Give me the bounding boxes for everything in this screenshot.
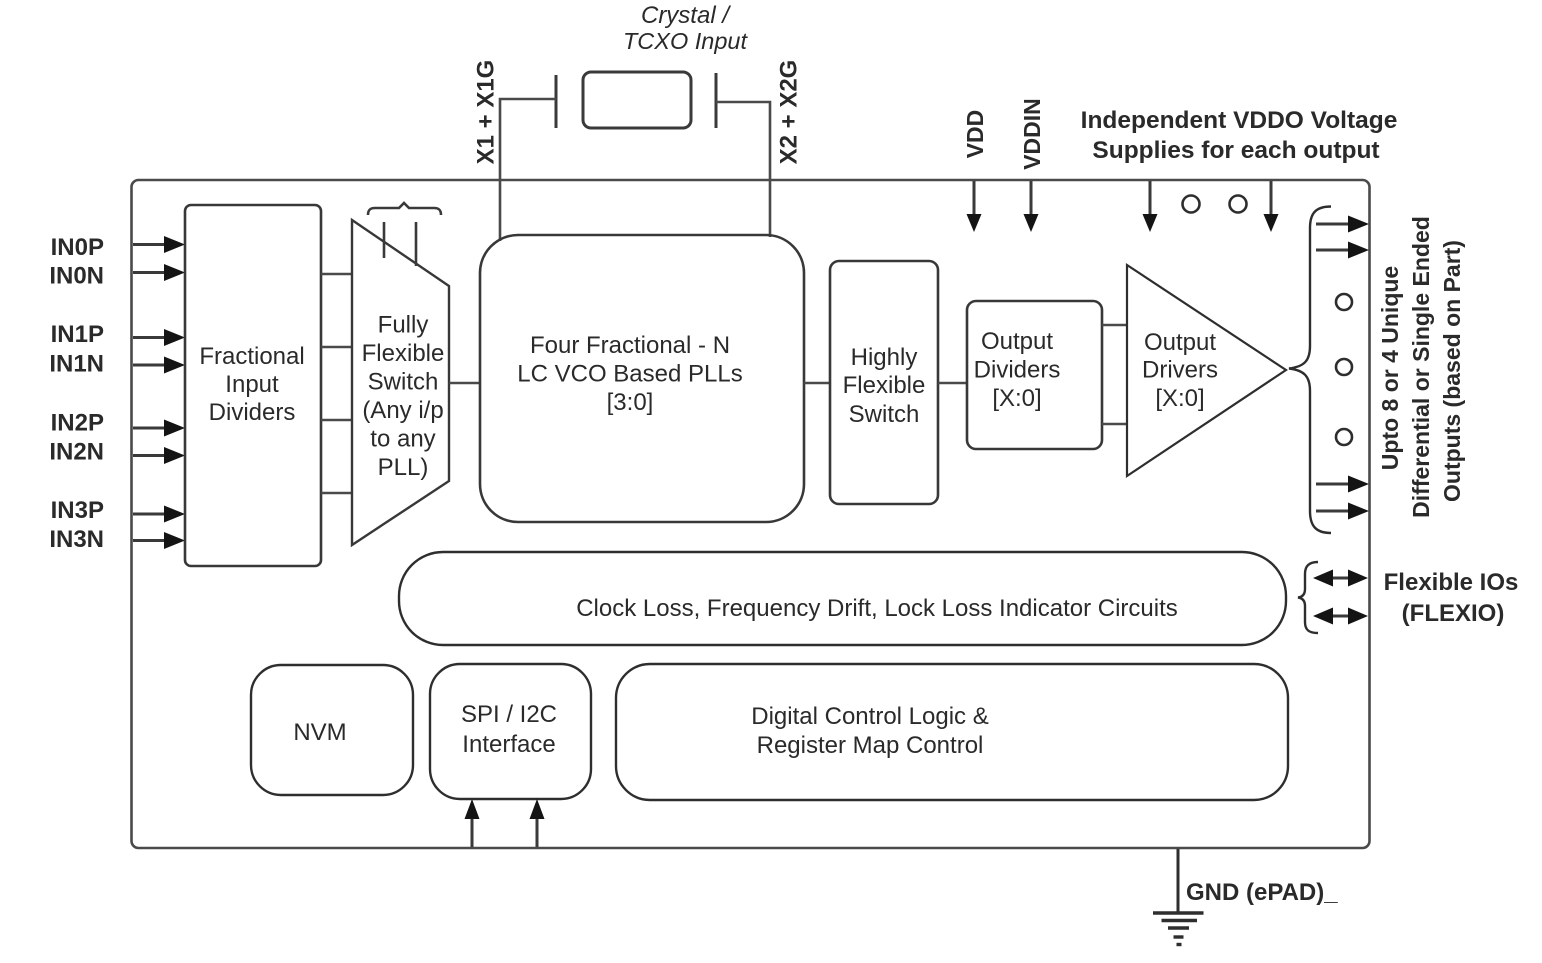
svg-text:Output: Output <box>1144 329 1216 356</box>
svg-text:TCXO Input: TCXO Input <box>623 28 749 54</box>
svg-text:Flexible IOs: Flexible IOs <box>1384 569 1519 596</box>
svg-text:LC VCO Based PLLs: LC VCO Based PLLs <box>517 361 742 388</box>
svg-text:[3:0]: [3:0] <box>607 389 654 416</box>
svg-text:IN2P: IN2P <box>51 410 104 437</box>
svg-text:(FLEXIO): (FLEXIO) <box>1402 600 1505 627</box>
svg-text:Upto 8 or 4 Unique: Upto 8 or 4 Unique <box>1377 266 1403 470</box>
svg-text:Fully: Fully <box>378 312 429 339</box>
svg-text:IN0N: IN0N <box>49 263 104 290</box>
svg-text:IN1P: IN1P <box>51 321 104 348</box>
svg-text:Supplies for each output: Supplies for each output <box>1092 137 1379 164</box>
svg-text:[X:0]: [X:0] <box>1155 385 1204 412</box>
svg-text:Drivers: Drivers <box>1142 357 1218 384</box>
svg-text:Interface: Interface <box>462 731 555 758</box>
svg-text:Output: Output <box>981 328 1053 355</box>
svg-text:Switch: Switch <box>849 401 920 428</box>
svg-text:IN1N: IN1N <box>49 351 104 378</box>
svg-text:Flexible: Flexible <box>843 372 926 399</box>
svg-text:Four Fractional - N: Four Fractional - N <box>530 332 730 359</box>
svg-text:PLL): PLL) <box>378 454 429 481</box>
svg-text:X2 + X2G: X2 + X2G <box>776 60 803 165</box>
svg-text:Clock Loss, Frequency Drift, L: Clock Loss, Frequency Drift, Lock Loss I… <box>576 595 1178 622</box>
svg-text:SPI / I2C: SPI / I2C <box>461 701 557 728</box>
svg-text:Switch: Switch <box>368 369 439 396</box>
svg-text:to any: to any <box>370 426 435 453</box>
svg-text:Flexible: Flexible <box>362 340 445 367</box>
svg-text:Outputs (based on Part): Outputs (based on Part) <box>1439 240 1465 502</box>
svg-text:Highly: Highly <box>851 344 918 371</box>
svg-text:IN0P: IN0P <box>51 234 104 261</box>
svg-text:Dividers: Dividers <box>974 357 1061 384</box>
svg-text:(Any i/p: (Any i/p <box>362 397 443 424</box>
svg-text:IN3P: IN3P <box>51 497 104 524</box>
svg-text:VDD: VDD <box>962 110 988 159</box>
svg-text:Crystal /: Crystal / <box>641 2 731 29</box>
svg-text:IN3N: IN3N <box>49 526 104 553</box>
svg-text:Digital Control Logic &: Digital Control Logic & <box>751 703 988 730</box>
svg-text:Dividers: Dividers <box>209 399 296 426</box>
svg-text:IN2N: IN2N <box>49 439 104 466</box>
svg-text:VDDIN: VDDIN <box>1019 98 1045 170</box>
svg-text:NVM: NVM <box>293 719 346 746</box>
svg-text:GND (ePAD)_: GND (ePAD)_ <box>1186 879 1338 906</box>
svg-text:Input: Input <box>225 371 279 398</box>
svg-text:Independent VDDO Voltage: Independent VDDO Voltage <box>1081 107 1398 134</box>
svg-text:Differential or Single Ended: Differential or Single Ended <box>1408 216 1434 518</box>
svg-text:Fractional: Fractional <box>199 343 304 370</box>
svg-text:[X:0]: [X:0] <box>992 385 1041 412</box>
svg-text:X1 + X1G: X1 + X1G <box>473 60 500 165</box>
svg-text:Register Map Control: Register Map Control <box>757 732 984 759</box>
